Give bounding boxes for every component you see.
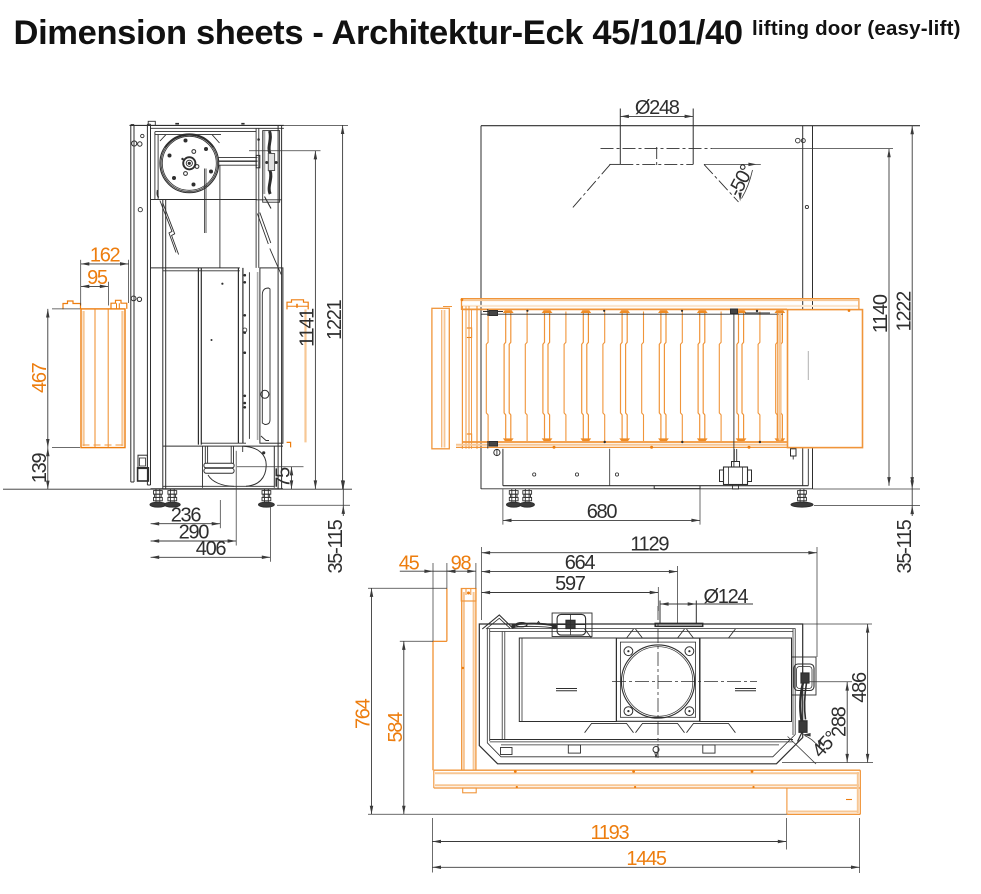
svg-text:35-115: 35-115 — [894, 519, 916, 573]
svg-text:95: 95 — [87, 267, 108, 289]
svg-text:Ø124: Ø124 — [704, 586, 749, 608]
svg-text:1140: 1140 — [870, 294, 892, 333]
svg-text:1445: 1445 — [626, 848, 666, 870]
svg-text:98: 98 — [451, 552, 472, 574]
svg-text:1129: 1129 — [630, 533, 669, 555]
svg-text:680: 680 — [587, 501, 618, 523]
svg-text:Dimension sheets - Architektur: Dimension sheets - Architektur-Eck 45/10… — [14, 14, 743, 52]
svg-text:467: 467 — [29, 362, 51, 393]
svg-text:1141: 1141 — [297, 308, 319, 347]
svg-text:1222: 1222 — [893, 291, 915, 331]
svg-text:288: 288 — [828, 706, 850, 737]
svg-text:764: 764 — [353, 698, 375, 729]
svg-text:1193: 1193 — [590, 822, 629, 844]
svg-text:139: 139 — [29, 452, 51, 483]
svg-text:Ø248: Ø248 — [635, 97, 680, 119]
svg-text:664: 664 — [565, 552, 596, 574]
svg-text:597: 597 — [555, 573, 586, 595]
svg-text:35-115: 35-115 — [325, 519, 347, 573]
svg-text:406: 406 — [196, 538, 227, 560]
svg-text:lifting door (easy-lift): lifting door (easy-lift) — [752, 17, 961, 40]
svg-text:45: 45 — [399, 552, 420, 574]
svg-text:162: 162 — [90, 245, 121, 267]
svg-text:486: 486 — [849, 672, 871, 703]
svg-text:584: 584 — [385, 712, 407, 743]
svg-text:75: 75 — [273, 467, 295, 488]
svg-text:1221: 1221 — [324, 299, 346, 339]
